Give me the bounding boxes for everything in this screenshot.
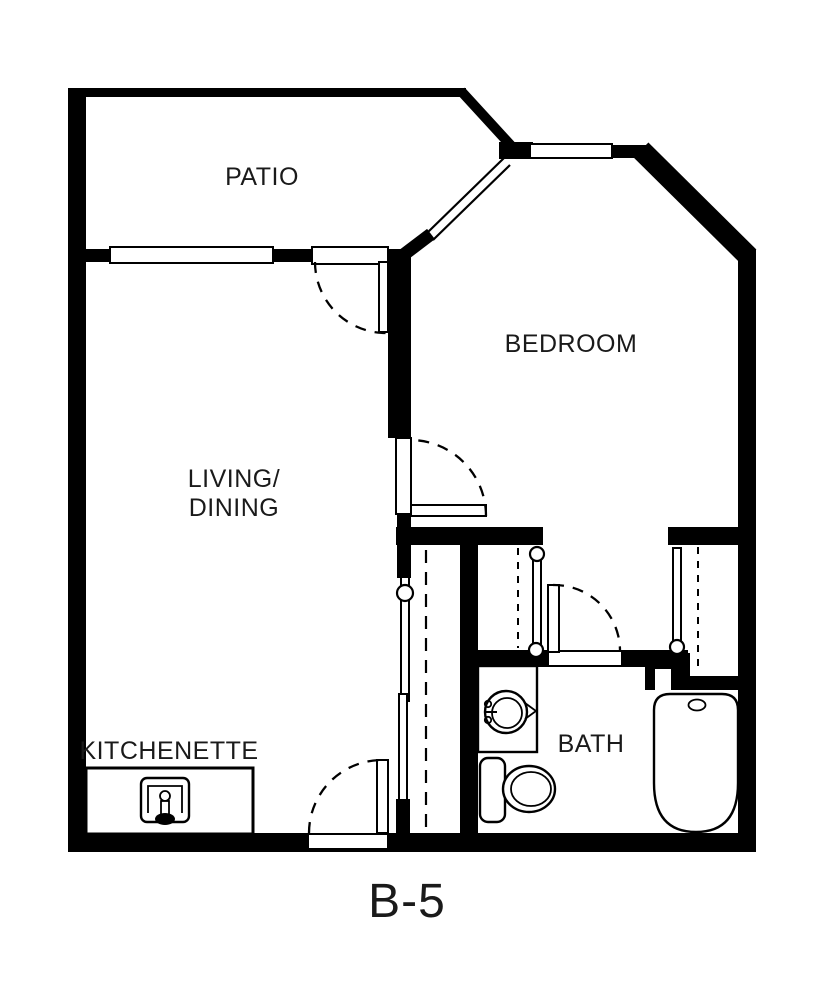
entry-door-panel <box>377 760 388 833</box>
closet-west-post <box>396 799 410 833</box>
left-closet-knob-bottom <box>529 643 543 657</box>
hall-closet-knob <box>397 585 413 601</box>
bedroom-door-panel <box>411 505 486 516</box>
bedroom-closet-knob <box>670 640 684 654</box>
bedroom-door-opening <box>396 438 411 514</box>
kitchenette-label: KITCHENETTE <box>79 737 258 765</box>
living-bedroom-wall <box>388 249 411 438</box>
bedroom-door <box>396 438 486 516</box>
bathtub-outline <box>654 694 738 832</box>
hall-closet-bifold-lower <box>399 694 407 800</box>
bath-door-swing <box>553 585 620 651</box>
patio-door-opening <box>312 247 388 264</box>
bath-label: BATH <box>558 730 625 758</box>
patio-door-panel <box>379 262 388 332</box>
bath-door-opening <box>548 651 622 666</box>
bath-west-wall <box>460 527 478 852</box>
left-closet-knob-top <box>530 547 544 561</box>
left-closet-bifold <box>533 560 541 645</box>
closet-west-stub <box>397 530 411 578</box>
kitchen-sink-icon <box>141 778 189 825</box>
patio-top-wall <box>68 88 466 97</box>
living-dining-label-line1: LIVING/ <box>188 465 280 493</box>
patio-window <box>110 247 273 263</box>
entry-door <box>308 760 388 849</box>
toilet-icon <box>480 758 555 822</box>
diagonal-window-line-outer <box>427 158 504 233</box>
bottom-wall <box>68 833 756 852</box>
right-wall <box>738 250 756 852</box>
patio-door-swing <box>315 262 386 333</box>
entry-door-opening <box>308 834 388 849</box>
left-closet <box>518 547 544 657</box>
bedroom-south-right-wall <box>668 527 756 545</box>
tub-wall-notch <box>655 669 671 690</box>
bath-door-panel <box>548 585 559 652</box>
bedroom-ne-diagonal-wall <box>641 150 749 257</box>
living-dining-label-line2: DINING <box>189 494 280 522</box>
floor-plan: PATIO BEDROOM LIVING/ DINING KITCHENETTE… <box>0 0 825 998</box>
bay-window <box>530 144 612 158</box>
toilet-tank <box>480 758 505 822</box>
patio-door <box>312 247 388 333</box>
diagonal-window-line-inner <box>433 165 510 240</box>
unit-label: B-5 <box>368 875 446 928</box>
patio-label: PATIO <box>225 163 299 191</box>
bath-door <box>548 585 622 666</box>
bedroom-closet-bifold <box>673 548 681 641</box>
bedroom-label: BEDROOM <box>505 330 638 358</box>
bathtub-icon <box>654 694 738 832</box>
floor-plan-page: PATIO BEDROOM LIVING/ DINING KITCHENETTE… <box>0 0 825 998</box>
kitchen-faucet-base <box>155 813 175 825</box>
vanity-sink-icon <box>478 666 537 752</box>
hall-closet <box>397 550 426 828</box>
windows <box>110 144 612 263</box>
entry-door-swing <box>309 760 382 833</box>
tub-north-wall <box>682 676 756 690</box>
